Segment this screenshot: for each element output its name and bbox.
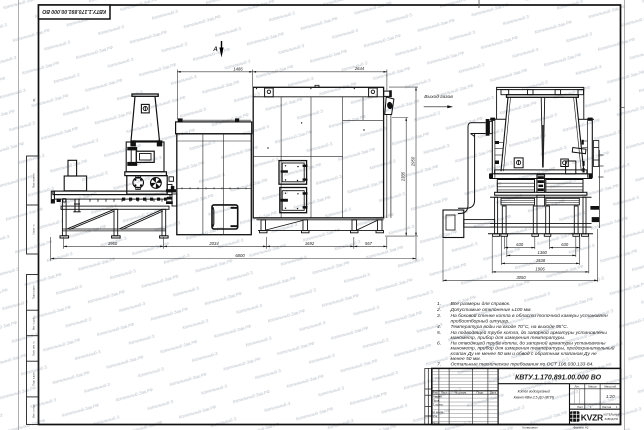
svg-text:Т. контр.: Т. контр. xyxy=(433,402,444,406)
svg-text:1906: 1906 xyxy=(535,266,545,271)
svg-text:На отводящей трубе котла, до з: На отводящей трубе котла, до запорной ар… xyxy=(451,339,606,346)
svg-text:ЗАВОД.РФ: ЗАВОД.РФ xyxy=(605,417,619,421)
svg-text:манометр, прибор для измерения: манометр, прибор для измерения температу… xyxy=(451,345,615,352)
svg-text:Копировал: Копировал xyxy=(522,425,537,429)
svg-text:А: А xyxy=(212,46,218,53)
svg-text:1692: 1692 xyxy=(305,241,315,246)
svg-text:Утв.: Утв. xyxy=(433,414,439,418)
svg-text:Температура воды на входе 70°С: Температура воды на входе 70°С, на выход… xyxy=(451,324,569,330)
svg-text:5.: 5. xyxy=(437,330,441,336)
svg-text:№ докум.: № докум. xyxy=(455,391,468,395)
svg-text:Котел водогрейный: Котел водогрейный xyxy=(518,389,550,393)
svg-text:Допустимые отклонение ±100 мм.: Допустимые отклонение ±100 мм. xyxy=(450,307,532,313)
svg-text:6800: 6800 xyxy=(235,253,245,258)
svg-text:На подводящей трубе котла, до: На подводящей трубе котла, до запорной а… xyxy=(451,329,608,336)
svg-text:Подп.: Подп. xyxy=(476,391,484,395)
svg-text:КОТЕЛЬНЫЙ: КОТЕЛЬНЫЙ xyxy=(604,412,621,416)
svg-text:2034: 2034 xyxy=(208,241,219,246)
svg-text:3050: 3050 xyxy=(516,275,526,280)
svg-text:Лист: Лист xyxy=(577,405,584,409)
svg-text:1538: 1538 xyxy=(536,258,546,263)
svg-text:Остальные технические требован: Остальные технические требования по ОСТ … xyxy=(451,361,594,367)
svg-text:Перв. примен.: Перв. примен. xyxy=(34,173,36,189)
svg-text:Подп. и дата: Подп. и дата xyxy=(34,285,36,299)
svg-text:1:20: 1:20 xyxy=(606,394,615,399)
svg-text:Инв. № дубл.: Инв. № дубл. xyxy=(33,316,36,331)
svg-text:Подп.: Подп. xyxy=(433,421,441,425)
svg-text:6.: 6. xyxy=(437,340,441,346)
svg-text:Инв. № подл.: Инв. № подл. xyxy=(33,403,36,418)
svg-text:567: 567 xyxy=(365,241,373,246)
svg-text:1360: 1360 xyxy=(538,250,548,255)
svg-text:4.: 4. xyxy=(437,324,441,330)
svg-text:Лит.: Лит. xyxy=(575,384,580,388)
svg-text:пробоотборный штуцер.: пробоотборный штуцер. xyxy=(451,317,510,324)
svg-text:Выход газов: Выход газов xyxy=(424,94,453,100)
svg-text:Подп. и дата: Подп. и дата xyxy=(34,372,36,386)
svg-text:На боковой стенке котла в обла: На боковой стенке котла в области топочн… xyxy=(451,312,608,319)
svg-text:Масса: Масса xyxy=(588,384,597,388)
svg-text:Справ. №: Справ. № xyxy=(33,224,36,235)
svg-text:630: 630 xyxy=(516,242,524,247)
svg-text:2335: 2335 xyxy=(401,171,406,182)
svg-text:менее 50 мм.: менее 50 мм. xyxy=(451,356,481,362)
svg-text:Листов: Листов xyxy=(602,405,612,409)
svg-text:КВТУ.1.170.891.00.000 ВО: КВТУ.1.170.891.00.000 ВО xyxy=(515,375,602,382)
svg-text:Формат А2: Формат А2 xyxy=(573,425,588,429)
svg-text:КВТУ.1.170.891.00.000 ВО: КВТУ.1.170.891.00.000 ВО xyxy=(42,8,106,14)
svg-text:1960: 1960 xyxy=(108,241,118,246)
svg-text:2644: 2644 xyxy=(354,66,365,71)
svg-text:7.: 7. xyxy=(437,361,441,367)
svg-text:клапан Ду не менее 50 мм и обв: клапан Ду не менее 50 мм и обвод с обрат… xyxy=(451,351,598,357)
svg-text:3.: 3. xyxy=(437,313,441,319)
svg-text:2.: 2. xyxy=(436,307,441,313)
svg-text:Все размеры для справок.: Все размеры для справок. xyxy=(451,301,511,307)
svg-text:630: 630 xyxy=(561,242,569,247)
svg-text:Взам. инв. №: Взам. инв. № xyxy=(33,341,36,356)
svg-text:2950: 2950 xyxy=(410,156,415,167)
svg-text:манометр, прибор для измерения: манометр, прибор для измерения температу… xyxy=(451,335,566,341)
svg-text:Масштаб: Масштаб xyxy=(604,384,616,388)
svg-text:KVZR: KVZR xyxy=(581,413,604,423)
svg-text:Дата: Дата xyxy=(490,391,497,395)
svg-text:1486: 1486 xyxy=(233,66,243,71)
svg-text:1.: 1. xyxy=(437,301,441,307)
svg-text:Квант-КВм-2,5-ДО-(ВПЛ): Квант-КВм-2,5-ДО-(ВПЛ) xyxy=(514,396,554,400)
